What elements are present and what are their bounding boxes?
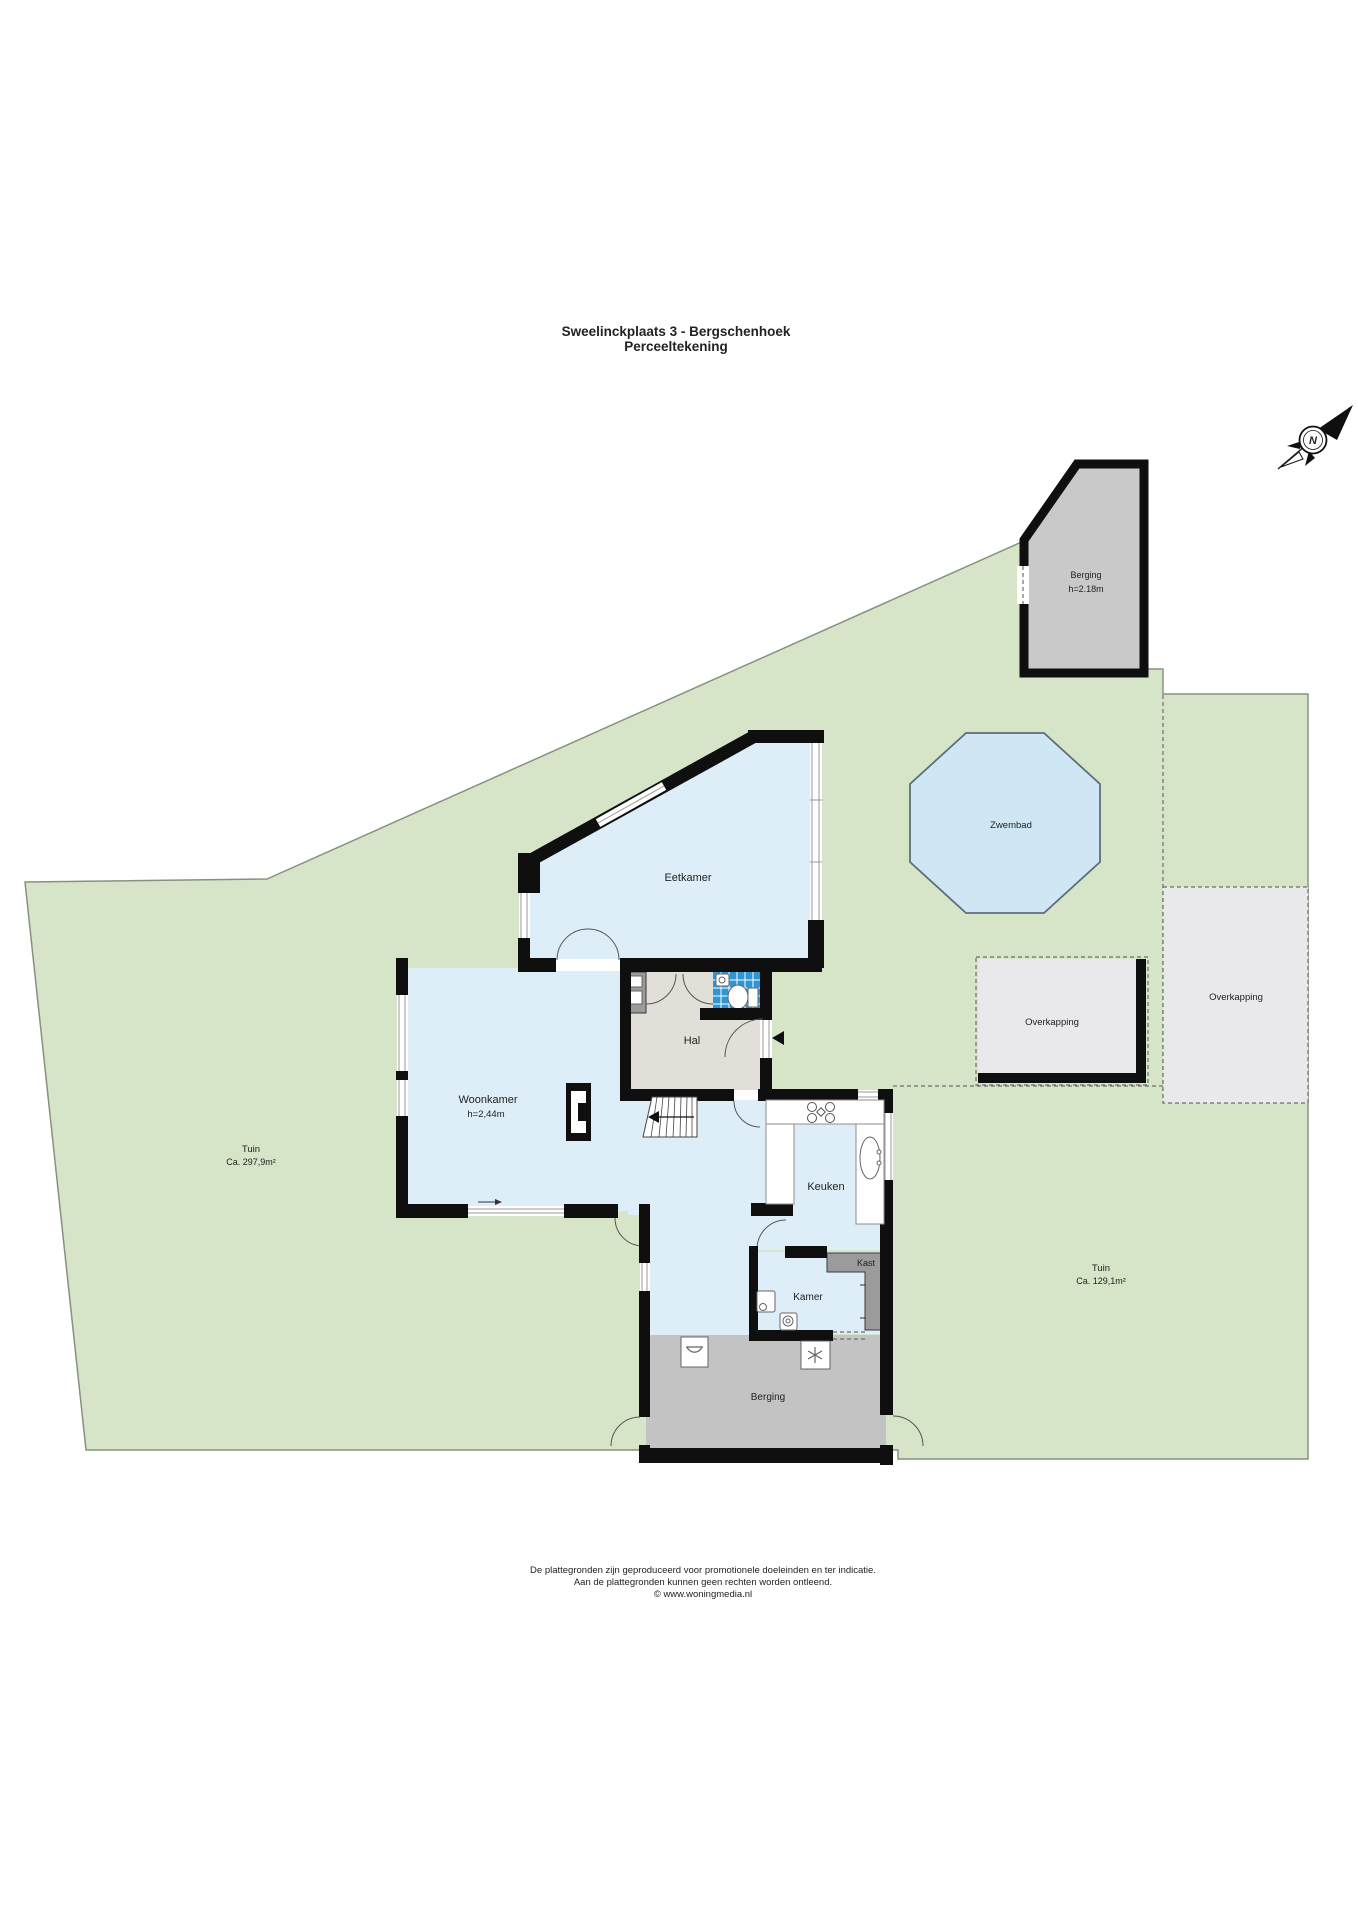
shed-outline: [1024, 464, 1144, 673]
compass-south-arrow: [1281, 452, 1303, 467]
hal-south-door-gap: [734, 1090, 758, 1100]
wc-room: [713, 972, 761, 1010]
floorplan-canvas: Sweelinckplaats 3 - Bergschenhoek Percee…: [0, 0, 1358, 1920]
front-door-gap: [760, 1020, 772, 1058]
compass-north-label: N: [1309, 435, 1318, 447]
kitchen-counter-left: [766, 1124, 794, 1204]
canopy-right: Overkapping: [1163, 887, 1308, 1103]
floorplan-page: Sweelinckplaats 3 - Bergschenhoek Percee…: [0, 0, 1358, 1920]
toilet-tank-icon: [748, 988, 758, 1007]
kast-label: Kast: [857, 1258, 876, 1268]
overkapping-right-label: Overkapping: [1209, 992, 1263, 1003]
shed-berging-label: Berging: [1070, 570, 1101, 580]
footer-disclaimer: De plattegronden zijn geproduceerd voor …: [530, 1565, 876, 1600]
keuken-label: Keuken: [807, 1181, 844, 1193]
fireplace: [566, 1083, 591, 1141]
tuin-right-size: Ca. 129,1m²: [1076, 1276, 1126, 1286]
extension-floor: [648, 1212, 757, 1338]
tuin-left-label: Tuin: [242, 1144, 260, 1155]
zwembad-label: Zwembad: [990, 820, 1032, 831]
woonkamer-height-label: h=2,44m: [467, 1109, 504, 1120]
sink-icon: [860, 1137, 880, 1179]
title-line1: Sweelinckplaats 3 - Bergschenhoek: [562, 324, 791, 339]
canopy-left: Overkapping: [976, 957, 1148, 1085]
woonkamer-floor: [404, 968, 652, 1211]
footer-line2: Aan de plattegronden kunnen geen rechten…: [574, 1577, 832, 1588]
shed-door-gap: [1017, 566, 1029, 604]
staircase: [643, 1097, 697, 1137]
title-line2: Perceeltekening: [624, 339, 728, 354]
swimming-pool: Zwembad: [910, 733, 1100, 913]
canopy-left-wall-right: [1136, 959, 1146, 1083]
page-title: Sweelinckplaats 3 - Bergschenhoek Percee…: [562, 324, 791, 354]
kamer-label: Kamer: [793, 1292, 823, 1303]
overkapping-left-label: Overkapping: [1025, 1017, 1079, 1028]
woonkamer-label: Woonkamer: [458, 1094, 517, 1106]
hal-label: Hal: [684, 1035, 701, 1047]
tuin-right-label: Tuin: [1092, 1263, 1110, 1274]
shed-height-label: h=2.18m: [1068, 584, 1103, 594]
detached-shed: Berging h=2.18m: [1017, 464, 1144, 673]
wc-sink-basin: [719, 977, 725, 983]
canopy-left-wall-bottom: [978, 1073, 1146, 1083]
toilet-bowl-icon: [728, 985, 748, 1009]
eetkamer-label: Eetkamer: [664, 872, 711, 884]
berging-label: Berging: [751, 1392, 785, 1403]
french-door-gap: [556, 959, 620, 971]
sliding-door-band: [468, 1206, 564, 1216]
footer-line3: © www.woningmedia.nl: [654, 1589, 752, 1600]
compass-rose: N: [1278, 405, 1353, 469]
tuin-left-size: Ca. 297,9m²: [226, 1157, 276, 1167]
footer-line1: De plattegronden zijn geproduceerd voor …: [530, 1565, 876, 1576]
